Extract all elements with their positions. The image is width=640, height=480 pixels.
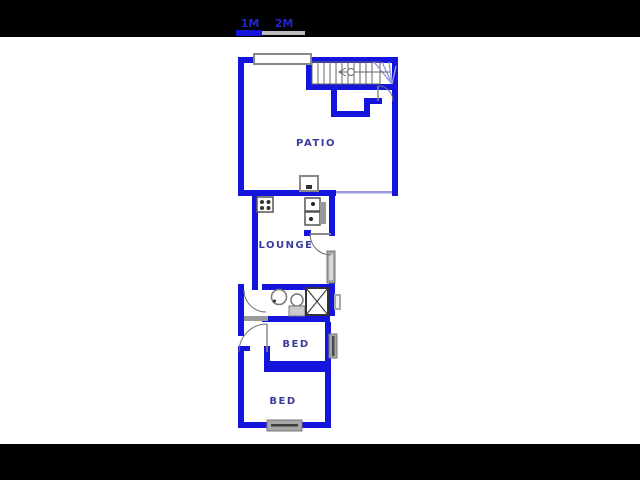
window-bed1-inner (332, 336, 335, 356)
patio-label: PATIO (296, 138, 336, 149)
wall-bed2-right (325, 366, 331, 428)
patio-open-edge-line (336, 191, 392, 194)
wall-hall-left-upper (238, 284, 244, 336)
window-lounge-inner (329, 254, 333, 280)
wall-patio-left (238, 57, 244, 196)
window-bed2-inner (271, 424, 298, 427)
kitchen-jamb (320, 202, 326, 224)
wall-lounge-right-upper (329, 196, 335, 236)
bathroom-basin-icon (272, 290, 287, 305)
scale-1m-label: 1M (241, 17, 260, 30)
lounge-label: LOUNGE (258, 240, 313, 251)
wall-bathroom-bottom (262, 316, 330, 322)
floor-plan-canvas: 1M 2M (0, 0, 640, 480)
bed2-label: BED (269, 396, 296, 407)
shower-icon (306, 288, 328, 315)
bathroom-door-leaf (244, 316, 268, 321)
window-top (254, 54, 311, 64)
wall-bed-divider (264, 361, 331, 372)
canvas-background (0, 37, 640, 444)
wall-understair-4 (364, 98, 382, 104)
window-bathroom-inner (336, 296, 339, 308)
scale-bar-gray-segment (262, 31, 305, 35)
scale-2m-label: 2M (275, 17, 294, 30)
scale-bar-blue-segment (236, 30, 262, 36)
patio-tub-icon (300, 176, 318, 191)
stove-icon (257, 197, 273, 212)
screenshot-root: 1M 2M (0, 0, 640, 480)
kitchen-sink-unit-icon (305, 198, 326, 225)
bed1-label: BED (282, 339, 309, 350)
wall-hall-left-lower (238, 350, 244, 428)
scale-bar: 1M 2M (236, 17, 305, 36)
